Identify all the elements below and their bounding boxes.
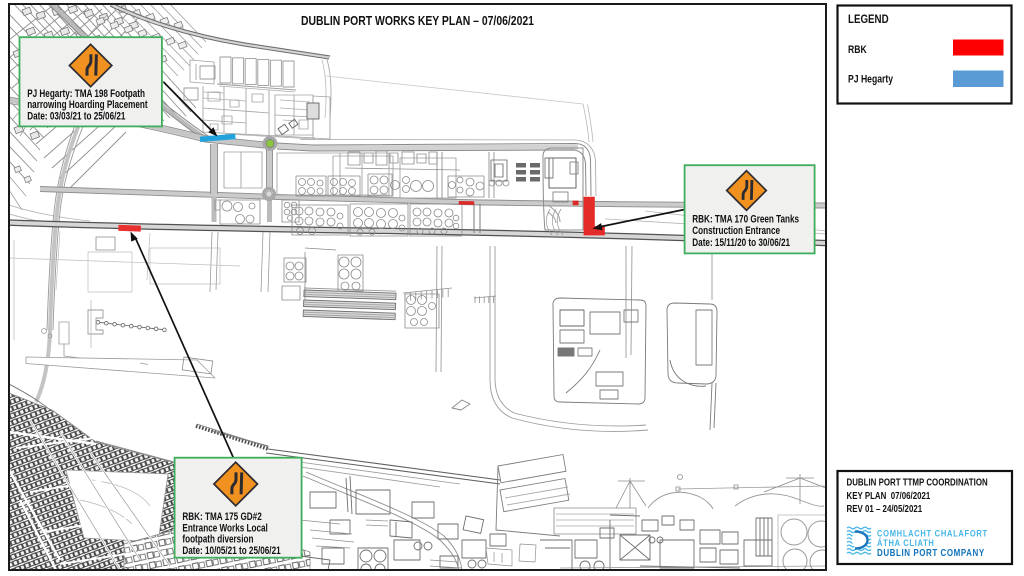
svg-text:DUBLIN PORT TTMP COORDINATION: DUBLIN PORT TTMP COORDINATION <box>847 477 988 488</box>
svg-text:REV 01 – 24/05/2021: REV 01 – 24/05/2021 <box>847 503 923 514</box>
svg-text:Date: 15/11/20 to 30/06/21: Date: 15/11/20 to 30/06/21 <box>692 237 790 249</box>
svg-text:KEY PLAN 07/06/2021: KEY PLAN 07/06/2021 <box>847 490 931 501</box>
svg-text:RBK: RBK <box>848 44 867 56</box>
svg-text:DUBLIN PORT COMPANY: DUBLIN PORT COMPANY <box>877 547 985 558</box>
svg-text:RBK: TMA 170 Green Tanks: RBK: TMA 170 Green Tanks <box>692 213 799 225</box>
svg-text:LEGEND: LEGEND <box>848 13 889 26</box>
svg-text:Construction Entrance: Construction Entrance <box>692 225 780 237</box>
svg-text:footpath diversion: footpath diversion <box>182 533 253 545</box>
svg-text:RBK: TMA 175 GD#2: RBK: TMA 175 GD#2 <box>182 511 261 523</box>
svg-text:Date: 10/05/21 to 25/06/21: Date: 10/05/21 to 25/06/21 <box>182 545 280 557</box>
svg-text:Date: 03/03/21 to 25/06/21: Date: 03/03/21 to 25/06/21 <box>27 110 125 122</box>
svg-text:PJ Hegarty: PJ Hegarty <box>848 74 894 86</box>
svg-text:DUBLIN PORT WORKS KEY PLAN – 0: DUBLIN PORT WORKS KEY PLAN – 07/06/2021 <box>301 13 534 29</box>
